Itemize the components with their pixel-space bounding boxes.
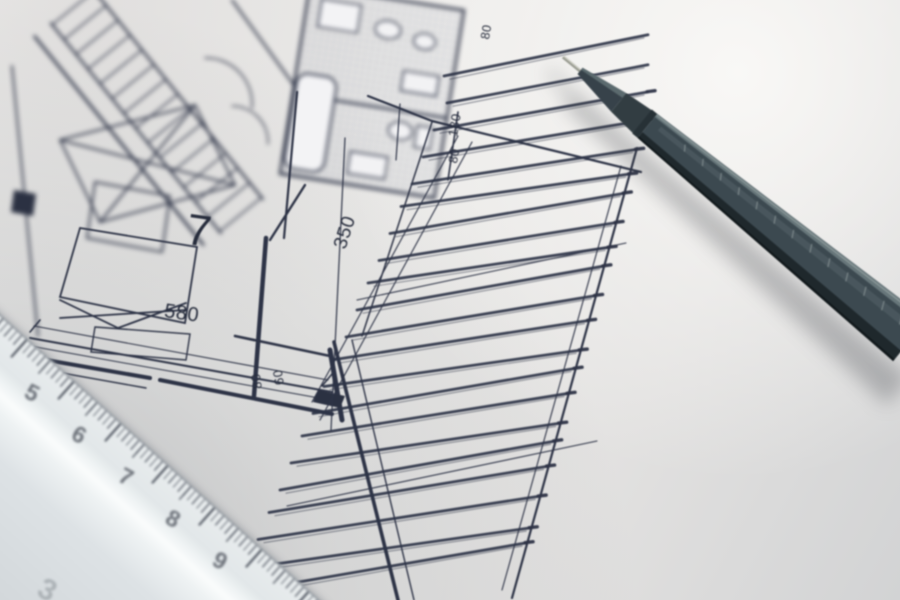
- wall-door-block: [11, 190, 36, 216]
- ruler-number-9: 9: [208, 546, 232, 576]
- plan-in-focus-layer: 7 580 350 80 60 180 80 80: [0, 0, 900, 600]
- ruler-number-6: 6: [67, 420, 91, 450]
- ruler-number-7: 7: [114, 462, 138, 492]
- pen-collar-ring: [632, 109, 657, 137]
- ruler-mm-ticks: [0, 297, 441, 600]
- staircase-drawing: [35, 0, 263, 246]
- bathroom-drawing: [280, 0, 464, 198]
- dimension-label-80c: 80: [446, 147, 462, 164]
- dimension-label-180: 180: [445, 112, 464, 137]
- shadow-layer: [0, 0, 900, 600]
- door-swing-arc: [232, 106, 268, 144]
- dimension-label-60: 60: [270, 369, 287, 386]
- floor-plan-drawing: [0, 0, 900, 600]
- pen: [546, 36, 900, 361]
- pen-layer: [0, 0, 900, 600]
- bathroom-tile-grid: [280, 0, 464, 198]
- plan-out-of-focus-layer: [0, 0, 900, 600]
- ruler-number-5: 5: [20, 378, 44, 408]
- wall-line: [232, 0, 296, 88]
- pen-barrel: [630, 105, 900, 361]
- ruler: 4 5 6 7 8 9 3: [0, 296, 442, 600]
- sink-drawing: [374, 19, 402, 41]
- dimension-label-350: 350: [330, 213, 361, 251]
- dimension-label-80b: 80: [478, 23, 494, 40]
- stair-landing-drawing: [60, 105, 235, 252]
- ruler-face-number: 3: [32, 572, 63, 600]
- room-number-label: 7: [183, 205, 215, 258]
- ruler-edge: [0, 296, 442, 600]
- ruler-5mm-ticks: [0, 297, 441, 600]
- deck-planks: [258, 35, 655, 592]
- dimension-label-580: 580: [163, 300, 201, 328]
- dimension-lines: [30, 136, 472, 430]
- ruler-number-8: 8: [161, 504, 185, 534]
- pen-grip-texture: [681, 141, 900, 327]
- bathtub-drawing: [283, 72, 338, 173]
- deck-hatching: [258, 35, 655, 600]
- pen-cone: [572, 62, 626, 112]
- floor-plan-drawing-blurred: [0, 0, 900, 600]
- pen-needle-tip: [562, 56, 581, 72]
- ruler-cm-ticks: [0, 297, 441, 600]
- bed-drawing: [60, 228, 197, 360]
- dimension-label-80: 80: [248, 373, 265, 390]
- toilet-drawing: [387, 120, 414, 142]
- pen-shadow: [519, 66, 900, 405]
- wall-lines: [0, 92, 458, 420]
- ruler-layer: 4 5 6 7 8 9 3: [0, 0, 900, 600]
- wall-line: [12, 66, 38, 336]
- photo-architectural-plan: 7 580 350 80 60 180 80 80 4 5 6 7: [0, 0, 900, 600]
- door-swing-arc: [205, 58, 252, 108]
